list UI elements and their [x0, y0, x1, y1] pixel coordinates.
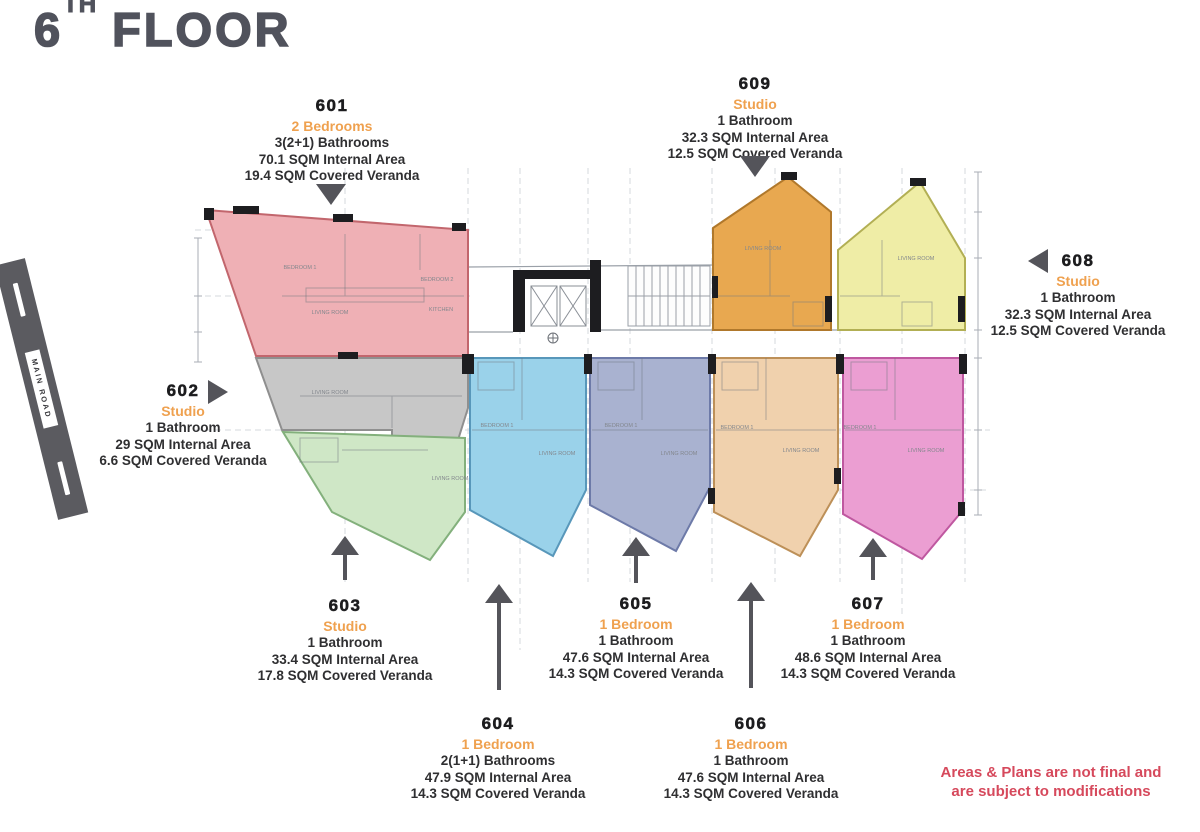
unit-number: 602: [83, 381, 283, 401]
unit-606-arrow-icon: [736, 582, 766, 688]
room-label: LIVING ROOM: [745, 246, 782, 252]
unit-604-arrow-icon: [484, 584, 514, 690]
title-ordinal-suffix: TH: [63, 0, 97, 18]
unit-type: 1 Bedroom: [651, 736, 851, 753]
title-floor-word: FLOOR: [112, 3, 291, 56]
unit-607-area: [843, 358, 963, 559]
unit-internal-area: 29 SQM Internal Area: [83, 437, 283, 454]
unit-bathrooms: 3(2+1) Bathrooms: [232, 135, 432, 152]
unit-type: Studio: [83, 403, 283, 420]
unit-internal-area: 47.9 SQM Internal Area: [398, 770, 598, 787]
unit-603-arrow-icon: [330, 536, 360, 580]
unit-601-arrow-icon: [316, 184, 346, 205]
unit-number: 604: [398, 714, 598, 734]
room-label: LIVING ROOM: [898, 256, 935, 262]
staircase: [628, 266, 710, 326]
unit-607-arrow-icon: [858, 538, 888, 580]
unit-606-label: 606 1 Bedroom 1 Bathroom 47.6 SQM Intern…: [651, 714, 851, 803]
unit-type: Studio: [655, 96, 855, 113]
floor-plan-page: BEDROOM 1 BEDROOM 2 LIVING ROOM KITCHEN …: [0, 0, 1200, 832]
unit-bathrooms: 2(1+1) Bathrooms: [398, 753, 598, 770]
unit-601-area: [206, 210, 468, 356]
unit-internal-area: 47.6 SQM Internal Area: [536, 650, 736, 667]
unit-number: 603: [245, 596, 445, 616]
unit-608-arrow-icon: [1028, 249, 1048, 273]
unit-605-label: 605 1 Bedroom 1 Bathroom 47.6 SQM Intern…: [536, 594, 736, 683]
unit-609-arrow-icon: [740, 156, 770, 177]
disclaimer-line-2: are subject to modifications: [930, 782, 1172, 801]
unit-internal-area: 70.1 SQM Internal Area: [232, 152, 432, 169]
unit-604-area: [470, 358, 586, 556]
room-label: LIVING ROOM: [312, 310, 349, 316]
unit-bathrooms: 1 Bathroom: [83, 420, 283, 437]
unit-type: 1 Bedroom: [768, 616, 968, 633]
unit-veranda-area: 6.6 SQM Covered Veranda: [83, 453, 283, 470]
unit-type: 1 Bedroom: [398, 736, 598, 753]
unit-bathrooms: 1 Bathroom: [245, 635, 445, 652]
disclaimer: Areas & Plans are not final and are subj…: [930, 763, 1172, 801]
room-label: LIVING ROOM: [661, 451, 698, 457]
unit-604-label: 604 1 Bedroom 2(1+1) Bathrooms 47.9 SQM …: [398, 714, 598, 803]
unit-number: 608: [976, 251, 1180, 271]
unit-type: Studio: [245, 618, 445, 635]
unit-type: Studio: [976, 273, 1180, 290]
unit-603-area: [283, 432, 465, 560]
unit-602-label: 602 Studio 1 Bathroom 29 SQM Internal Ar…: [83, 381, 283, 470]
unit-number: 605: [536, 594, 736, 614]
unit-605-arrow-icon: [621, 537, 651, 583]
unit-bathrooms: 1 Bathroom: [976, 290, 1180, 307]
page-title: 6THFLOOR: [34, 2, 292, 57]
room-label: BEDROOM 1: [283, 265, 316, 271]
unit-veranda-area: 19.4 SQM Covered Veranda: [232, 168, 432, 185]
unit-internal-area: 32.3 SQM Internal Area: [655, 130, 855, 147]
unit-609-area: [713, 177, 831, 330]
room-label: BEDROOM 1: [843, 425, 876, 431]
unit-number: 609: [655, 74, 855, 94]
unit-number: 606: [651, 714, 851, 734]
unit-internal-area: 47.6 SQM Internal Area: [651, 770, 851, 787]
unit-veranda-area: 12.5 SQM Covered Veranda: [976, 323, 1180, 340]
unit-606-area: [714, 358, 838, 556]
unit-internal-area: 32.3 SQM Internal Area: [976, 307, 1180, 324]
title-floor-number: 6: [34, 3, 63, 56]
room-label: LIVING ROOM: [432, 476, 469, 482]
room-label: KITCHEN: [429, 307, 453, 313]
room-label: BEDROOM 1: [480, 423, 513, 429]
room-label: LIVING ROOM: [312, 390, 349, 396]
unit-bathrooms: 1 Bathroom: [655, 113, 855, 130]
unit-type: 2 Bedrooms: [232, 118, 432, 135]
unit-bathrooms: 1 Bathroom: [536, 633, 736, 650]
unit-veranda-area: 17.8 SQM Covered Veranda: [245, 668, 445, 685]
unit-veranda-area: 14.3 SQM Covered Veranda: [398, 786, 598, 803]
room-label: BEDROOM 1: [720, 425, 753, 431]
unit-608-label: 608 Studio 1 Bathroom 32.3 SQM Internal …: [976, 251, 1180, 340]
unit-number: 607: [768, 594, 968, 614]
room-label: LIVING ROOM: [783, 448, 820, 454]
unit-veranda-area: 14.3 SQM Covered Veranda: [651, 786, 851, 803]
unit-type: 1 Bedroom: [536, 616, 736, 633]
unit-601-label: 601 2 Bedrooms 3(2+1) Bathrooms 70.1 SQM…: [232, 96, 432, 185]
room-label: LIVING ROOM: [539, 451, 576, 457]
room-label: BEDROOM 2: [420, 277, 453, 283]
unit-602-arrow-icon: [208, 380, 228, 404]
road-marking: [13, 283, 26, 317]
unit-veranda-area: 14.3 SQM Covered Veranda: [768, 666, 968, 683]
unit-veranda-area: 14.3 SQM Covered Veranda: [536, 666, 736, 683]
unit-bathrooms: 1 Bathroom: [651, 753, 851, 770]
room-label: LIVING ROOM: [908, 448, 945, 454]
unit-603-label: 603 Studio 1 Bathroom 33.4 SQM Internal …: [245, 596, 445, 685]
road-marking: [57, 461, 70, 495]
disclaimer-line-1: Areas & Plans are not final and: [930, 763, 1172, 782]
unit-609-label: 609 Studio 1 Bathroom 32.3 SQM Internal …: [655, 74, 855, 163]
unit-607-label: 607 1 Bedroom 1 Bathroom 48.6 SQM Intern…: [768, 594, 968, 683]
unit-bathrooms: 1 Bathroom: [768, 633, 968, 650]
unit-internal-area: 33.4 SQM Internal Area: [245, 652, 445, 669]
room-label: BEDROOM 1: [604, 423, 637, 429]
level-marker-icon: [548, 333, 558, 343]
unit-number: 601: [232, 96, 432, 116]
unit-internal-area: 48.6 SQM Internal Area: [768, 650, 968, 667]
